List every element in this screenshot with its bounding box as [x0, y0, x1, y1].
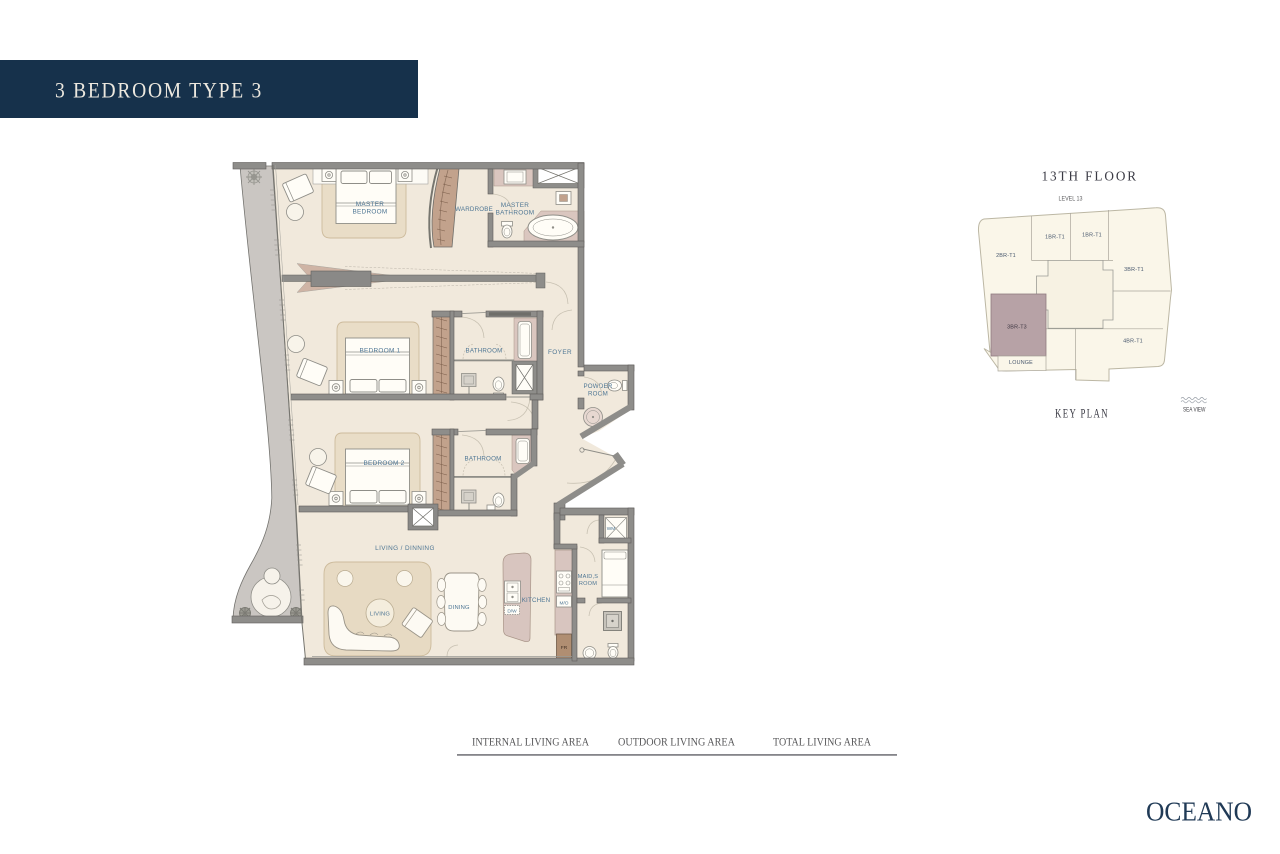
svg-text:4BR-T1: 4BR-T1 — [1123, 339, 1143, 345]
svg-text:DINING: DINING — [448, 605, 470, 611]
svg-text:SEA VIEW: SEA VIEW — [1183, 407, 1206, 414]
svg-text:OUTDOOR LIVING AREA: OUTDOOR LIVING AREA — [618, 737, 736, 749]
svg-text:3BR-T3: 3BR-T3 — [1007, 325, 1027, 331]
svg-text:INTERNAL LIVING AREA: INTERNAL LIVING AREA — [472, 737, 590, 749]
svg-text:KEY PLAN: KEY PLAN — [1055, 407, 1109, 421]
svg-text:BATHROOM: BATHROOM — [465, 456, 502, 463]
svg-text:TOTAL LIVING AREA: TOTAL LIVING AREA — [773, 737, 872, 749]
svg-text:3 BEDROOM TYPE 3: 3 BEDROOM TYPE 3 — [55, 78, 263, 103]
svg-text:ROOM: ROOM — [588, 391, 608, 398]
svg-text:1BR-T1: 1BR-T1 — [1082, 233, 1102, 239]
svg-text:WM: WM — [607, 526, 616, 532]
svg-text:MAID,S: MAID,S — [578, 574, 599, 580]
svg-text:3BR-T1: 3BR-T1 — [1124, 267, 1144, 273]
svg-text:MASTER: MASTER — [356, 201, 385, 208]
svg-text:LIVING / DINNING: LIVING / DINNING — [375, 545, 435, 552]
svg-text:D/W: D/W — [507, 609, 517, 615]
svg-text:13TH FLOOR: 13TH FLOOR — [1042, 170, 1139, 185]
svg-text:BEDROOM 2: BEDROOM 2 — [363, 460, 404, 467]
svg-text:MASTER: MASTER — [501, 202, 530, 209]
svg-text:FR: FR — [561, 645, 568, 651]
svg-text:ROOM: ROOM — [579, 581, 597, 587]
svg-text:1BR-T1: 1BR-T1 — [1045, 235, 1065, 241]
svg-text:BATHROOM: BATHROOM — [466, 348, 503, 355]
svg-text:BEDROOM: BEDROOM — [352, 209, 387, 216]
svg-text:BATHROOM: BATHROOM — [496, 210, 535, 217]
svg-text:FOYER: FOYER — [548, 349, 572, 356]
svg-text:M/O: M/O — [559, 601, 568, 607]
svg-text:2BR-T1: 2BR-T1 — [996, 253, 1016, 259]
svg-text:BEDROOM 1: BEDROOM 1 — [359, 348, 400, 355]
svg-text:WARDROBE: WARDROBE — [455, 206, 493, 213]
svg-text:LEVEL 13: LEVEL 13 — [1059, 196, 1083, 203]
svg-text:KITCHEN: KITCHEN — [522, 597, 551, 604]
svg-text:OCEANO: OCEANO — [1146, 797, 1252, 827]
svg-text:LOUNGE: LOUNGE — [1009, 360, 1033, 366]
svg-text:LIVING: LIVING — [370, 612, 390, 618]
